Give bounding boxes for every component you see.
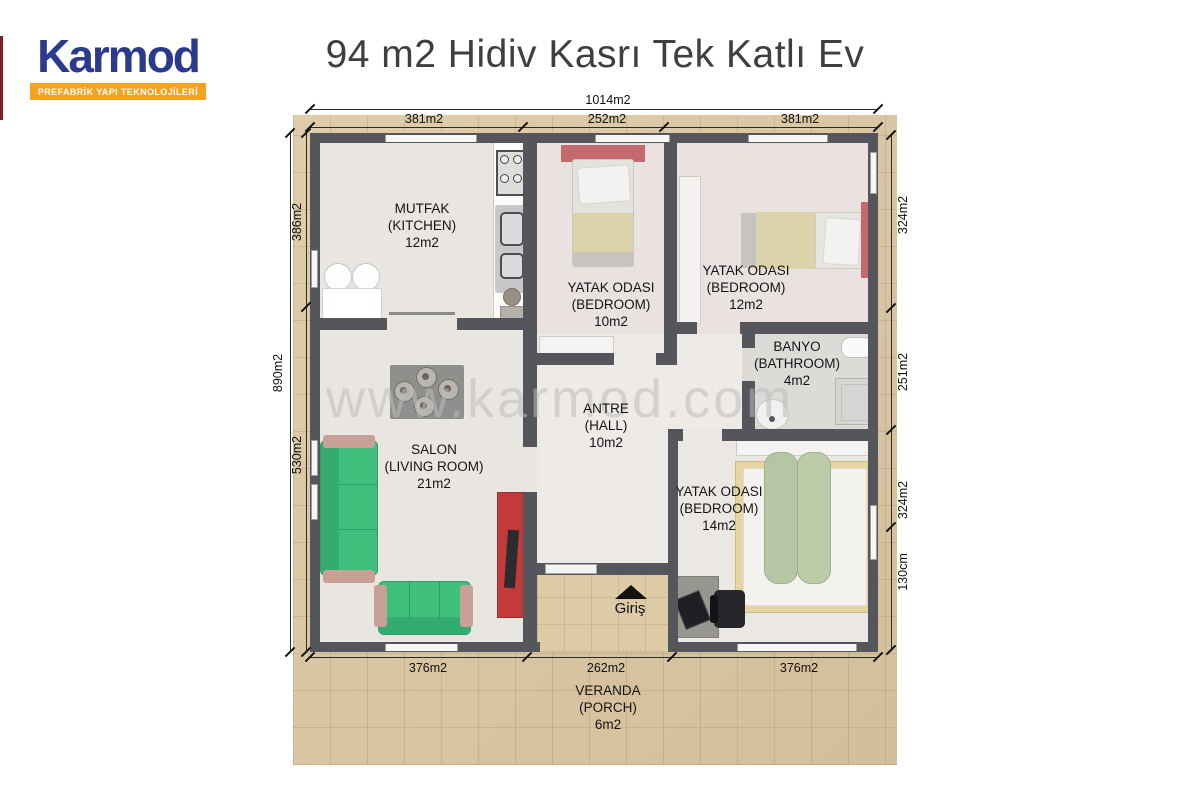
logo-tagline-bar: PREFABRİK YAPI TEKNOLOJİLERİ: [30, 83, 206, 100]
wall-v2: [664, 133, 677, 365]
logo-tagline: PREFABRİK YAPI TEKNOLOJİLERİ: [38, 87, 198, 97]
bed10-footboard: [573, 252, 633, 266]
dim-bottom-2: 262m2: [587, 661, 625, 675]
wall-bedroom12-south-b: [740, 322, 878, 334]
dim-line-bottom-segments: [310, 657, 878, 658]
dim-left-1: 386m2: [290, 203, 304, 241]
wall-bedroom10-south-a: [537, 353, 614, 365]
entrance-label: Giriş: [615, 600, 646, 617]
bed10-wardrobe: [539, 336, 614, 354]
room-label-bedroom14: YATAK ODASI (BEDROOM) 14m2: [675, 483, 762, 534]
dim-top-total: 1014m2: [585, 93, 630, 107]
wall-outer-left: [310, 133, 320, 652]
entrance-door: [545, 564, 597, 574]
sofa-large: [320, 440, 378, 576]
dim-right-4: 130cm: [896, 553, 910, 591]
wall-v1-lower: [523, 492, 537, 652]
dim-left-total: 890m2: [271, 354, 285, 392]
dim-line-left-segments: [306, 133, 307, 652]
wall-kitchen-south-a: [310, 318, 387, 330]
salon-window-left-2: [311, 484, 318, 520]
bedroom12-window-top: [748, 135, 828, 142]
salon-window-bottom: [385, 644, 458, 651]
dim-bottom-3: 376m2: [780, 661, 818, 675]
dim-left-2: 530m2: [290, 436, 304, 474]
kitchen-door-leaf: [389, 312, 455, 315]
dim-right-3: 324m2: [896, 481, 910, 519]
desk-chair-icon: [714, 590, 745, 628]
wall-bedroom14-north-b: [722, 429, 878, 441]
dim-line-right-segments: [891, 135, 892, 650]
kitchen-window-left: [311, 250, 318, 288]
room-label-bedroom10: YATAK ODASI (BEDROOM) 10m2: [567, 279, 654, 330]
sofa-large-armrest-bottom: [323, 570, 375, 583]
wall-bedroom14-west: [668, 429, 678, 652]
kitchen-island-counter: [322, 288, 382, 321]
room-label-salon: SALON (LIVING ROOM) 21m2: [384, 441, 483, 492]
entrance-arrow-icon: [615, 585, 647, 599]
bed10-pillow: [577, 164, 631, 205]
floor-plan-page: Karmod PREFABRİK YAPI TEKNOLOJİLERİ 94 m…: [0, 0, 1200, 800]
bedroom14-window-right: [870, 505, 877, 560]
sofa-small: [378, 581, 471, 635]
bedroom12-window-right: [870, 152, 877, 194]
room-label-veranda: VERANDA (PORCH) 6m2: [575, 682, 640, 733]
dim-top-2: 252m2: [588, 112, 626, 126]
dim-line-top-total: [310, 109, 878, 110]
kitchen-plant-icon: [503, 288, 521, 306]
bed12-pillow: [822, 217, 861, 266]
kitchen-window-top: [385, 135, 477, 142]
dim-right-1: 324m2: [896, 196, 910, 234]
dim-bottom-1: 376m2: [409, 661, 447, 675]
bedroom10-window-top: [595, 135, 670, 142]
entrance-recess-floor: [537, 575, 668, 652]
wall-outer-right: [868, 133, 878, 652]
dim-top-3: 381m2: [781, 112, 819, 126]
salon-window-left-1: [311, 440, 318, 476]
dim-line-top-segments: [310, 127, 878, 128]
room-label-kitchen: MUTFAK (KITCHEN) 12m2: [388, 200, 456, 251]
kitchen-basin-left: [324, 263, 352, 291]
room-label-bedroom12: YATAK ODASI (BEDROOM) 12m2: [702, 262, 789, 313]
page-edge-accent: [0, 36, 3, 120]
wall-bedroom12-south-a: [677, 322, 697, 334]
bed10-blanket: [573, 213, 633, 253]
wall-kitchen-south-b: [457, 318, 523, 330]
dim-right-2: 251m2: [896, 353, 910, 391]
sofa-large-armrest-top: [323, 435, 375, 448]
room-label-bathroom: BANYO (BATHROOM) 4m2: [754, 338, 840, 389]
bed12-wardrobe: [679, 176, 701, 324]
bed14-duvet-right: [797, 452, 831, 584]
bedroom14-window-bottom: [737, 644, 857, 651]
bed12-blanket: [756, 212, 816, 269]
watermark: www.karmod.com: [326, 368, 794, 430]
sofa-small-armrest-left: [374, 585, 387, 627]
karmod-logo: Karmod PREFABRİK YAPI TEKNOLOJİLERİ: [30, 30, 206, 100]
dim-top-1: 381m2: [405, 112, 443, 126]
logo-wordmark: Karmod: [30, 30, 206, 82]
kitchen-basin-right: [352, 263, 380, 291]
page-title: 94 m2 Hidiv Kasrı Tek Katlı Ev: [270, 33, 920, 77]
bed14-duvet-left: [764, 452, 798, 584]
sofa-small-armrest-right: [460, 585, 473, 627]
bed12-footboard: [741, 213, 757, 268]
room-label-hall: ANTRE (HALL) 10m2: [583, 400, 629, 451]
